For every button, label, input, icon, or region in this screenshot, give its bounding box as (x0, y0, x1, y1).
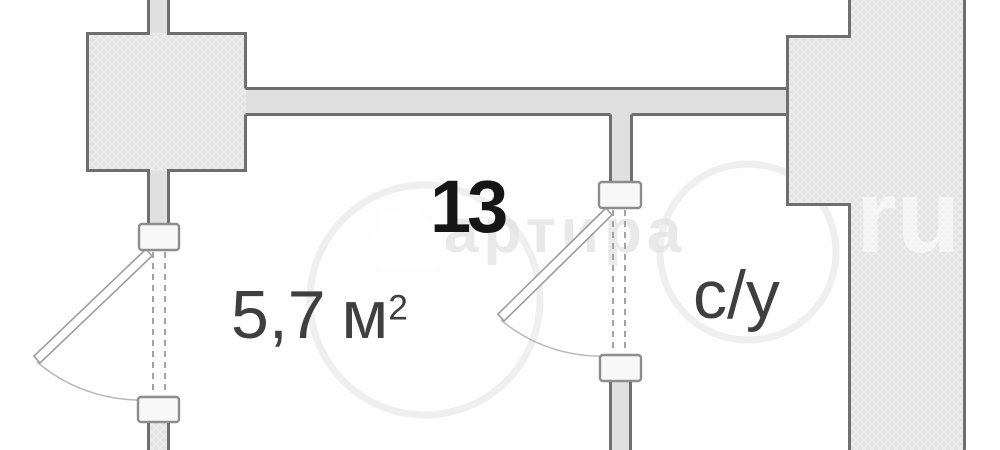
room-number-label: 13 (430, 170, 504, 244)
bathroom-label: с/у (693, 261, 780, 329)
watermark-suffix: ru (856, 158, 960, 277)
room-area-label: 5,7м2 (231, 281, 408, 349)
floor-plan: артира (0, 0, 1000, 450)
door-1-jamb-top (139, 224, 179, 250)
door-1-swing-arc (37, 362, 140, 400)
wall-stub-top-left (147, 0, 170, 33)
area-value: 5,7 (231, 277, 326, 353)
door-2-open-line (613, 210, 625, 353)
door-1-leaf (34, 249, 152, 363)
area-superscript: 2 (388, 289, 408, 328)
wall-below-left-door (148, 420, 169, 450)
wall-left-block (86, 32, 247, 172)
wall-stub-middle (611, 115, 632, 183)
wall-band-horizontal (246, 89, 786, 115)
door-1-jamb-bottom (138, 397, 179, 422)
door-2-swing-arc (501, 320, 606, 356)
door-2-jamb-bottom (600, 355, 641, 381)
door-2-jamb-top (599, 182, 641, 208)
door-2-leaf (498, 208, 612, 321)
wall-stub-left-lower (147, 171, 170, 226)
door-1-open-line (153, 252, 165, 395)
area-unit: м (342, 277, 389, 353)
wall-below-middle-door (610, 381, 631, 450)
